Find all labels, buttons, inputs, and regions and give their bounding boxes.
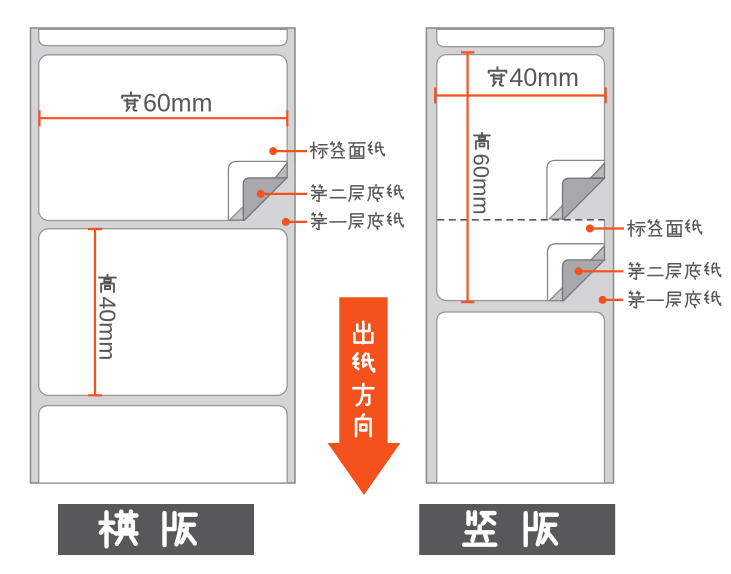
svg-text:60mm: 60mm bbox=[469, 154, 494, 215]
svg-text:40mm: 40mm bbox=[95, 297, 121, 361]
svg-text:40mm: 40mm bbox=[510, 64, 579, 92]
svg-text:60mm: 60mm bbox=[143, 90, 212, 118]
